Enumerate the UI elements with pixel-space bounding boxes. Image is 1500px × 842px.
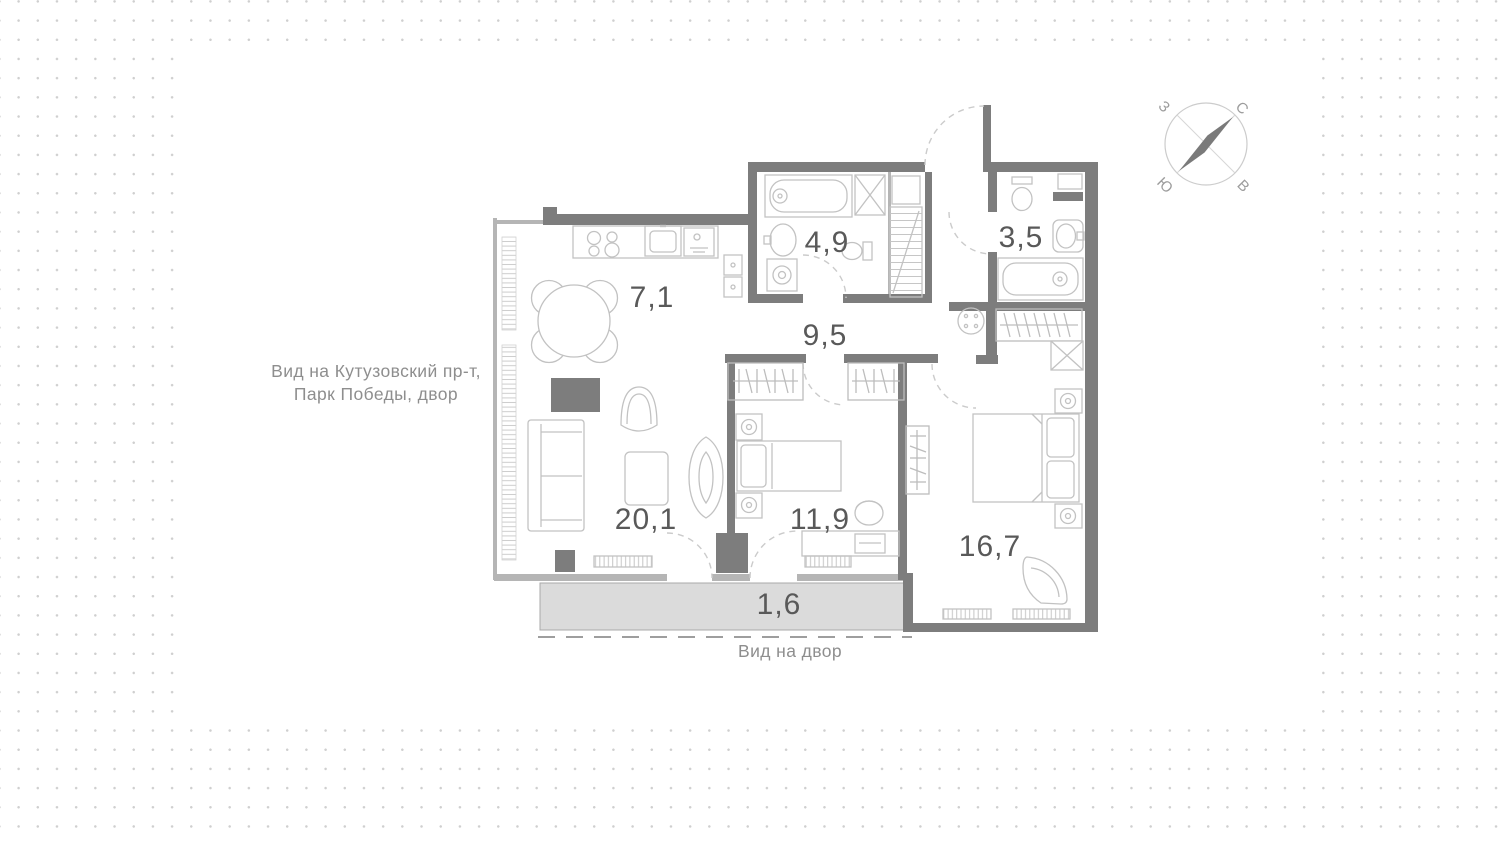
room-label-balcony: 1,6 [757,588,802,621]
view-label-left-line2: Парк Победы, двор [294,384,458,404]
room-label-bedroom-master: 16,7 [959,530,1021,563]
kitchen-cabinet [724,255,742,297]
floor-plan-drawing: 7,1 4,9 3,5 9,5 20,1 11,9 16,7 1,6 Вид н… [0,0,1500,842]
wardrobe [906,426,929,494]
wardrobe [996,309,1082,341]
sofa [528,420,584,531]
shaft-box [855,175,885,215]
compass-west: З [1155,98,1173,116]
washbasin [764,224,796,256]
room-label-bathroom-small: 3,5 [999,221,1044,254]
wardrobe [848,363,904,400]
kitchen-counter [573,226,718,258]
toilet [1012,177,1032,211]
shelf [1058,174,1082,189]
room-label-bathroom-big: 4,9 [805,226,850,259]
bedroom-small-door-arc [803,363,845,405]
closet [890,176,922,297]
compass: С В Ю З [1116,59,1291,234]
bathroom-small-door-arc [949,212,991,254]
washing-machine [767,259,797,291]
column [716,533,748,573]
radiator [943,609,991,619]
bathtub [998,258,1083,300]
radiator [805,556,851,567]
washbasin [1053,220,1084,252]
double-bed [973,414,1079,502]
dining-table [532,281,618,363]
balcony-door-bedroom-arc [750,531,797,578]
washer-niche [958,308,984,334]
stove [588,232,620,258]
room-label-bedroom-small: 11,9 [790,503,850,536]
nightstand [1055,389,1082,413]
bedroom-master-door-arc [932,364,976,408]
room-label-hallway: 9,5 [803,319,848,352]
nightstand [736,493,762,518]
compass-south: Ю [1153,174,1176,197]
floor-plan-page: { "plan": { "areas": { "kitchen": "7,1",… [0,0,1500,842]
armchair [1023,557,1067,604]
tv-console [689,437,723,518]
balcony [538,583,912,637]
nightstand [1055,504,1082,528]
room-label-living-room: 20,1 [615,503,677,536]
bathroom-big-door-arc [803,255,846,298]
view-label-bottom: Вид на двор [738,641,842,661]
column [551,378,600,412]
armchair [621,387,657,431]
bathtub [765,175,852,217]
entrance-door-leaf [983,105,991,172]
window-hatch [502,237,516,560]
compass-east: В [1234,177,1253,196]
radiator [1013,609,1070,619]
entrance-door-arc [925,106,984,165]
wardrobe [728,363,803,400]
room-label-kitchen: 7,1 [630,281,675,314]
nightstand [736,414,762,440]
column [555,550,575,572]
kitchen-sink [645,226,681,256]
view-label-left-line1: Вид на Кутузовский пр-т, [271,361,481,381]
shaft-box [1051,341,1083,370]
radiator [594,556,652,567]
single-bed [737,441,841,491]
dishwasher [684,228,714,256]
coffee-table [625,452,668,505]
balcony-door-living-arc [667,533,712,578]
